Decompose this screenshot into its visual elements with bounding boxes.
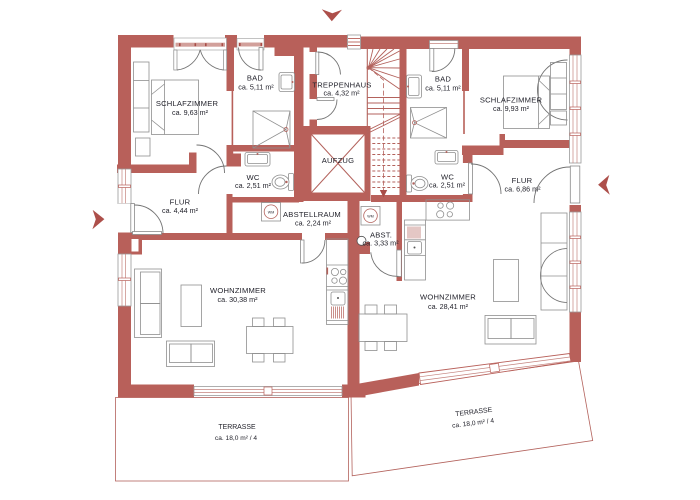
svg-text:BAD: BAD (247, 74, 264, 83)
svg-text:WOHNZIMMER: WOHNZIMMER (420, 293, 476, 302)
svg-text:ca. 28,41 m²: ca. 28,41 m² (428, 302, 469, 311)
svg-text:ca. 18,0 m² / 4: ca. 18,0 m² / 4 (215, 435, 257, 442)
svg-text:ca. 5,11 m²: ca. 5,11 m² (425, 84, 461, 93)
svg-text:ca. 4,32 m²: ca. 4,32 m² (324, 89, 361, 98)
svg-text:ca. 9,63 m²: ca. 9,63 m² (172, 108, 209, 117)
svg-text:AUFZUG: AUFZUG (322, 156, 354, 165)
svg-text:TERRASSE: TERRASSE (218, 424, 256, 431)
svg-text:ca. 3,33 m²: ca. 3,33 m² (363, 239, 400, 248)
svg-text:ca. 6,86 m²: ca. 6,86 m² (505, 185, 542, 194)
svg-text:BAD: BAD (435, 75, 452, 84)
svg-text:WM: WM (268, 211, 274, 215)
svg-text:ca. 9,93 m²: ca. 9,93 m² (493, 104, 530, 113)
svg-text:ca. 4,44 m²: ca. 4,44 m² (162, 206, 199, 215)
svg-text:WM: WM (367, 215, 373, 219)
svg-text:ca. 5,11 m²: ca. 5,11 m² (238, 83, 274, 92)
svg-text:ca. 2,51 m²: ca. 2,51 m² (235, 181, 272, 190)
svg-text:ca. 2,24 m²: ca. 2,24 m² (295, 219, 332, 228)
svg-text:WOHNZIMMER: WOHNZIMMER (210, 286, 266, 295)
svg-text:SCHLAFZIMMER: SCHLAFZIMMER (156, 99, 219, 108)
svg-text:ca. 2,51 m²: ca. 2,51 m² (429, 181, 466, 190)
svg-text:ca. 30,38 m²: ca. 30,38 m² (218, 295, 259, 304)
